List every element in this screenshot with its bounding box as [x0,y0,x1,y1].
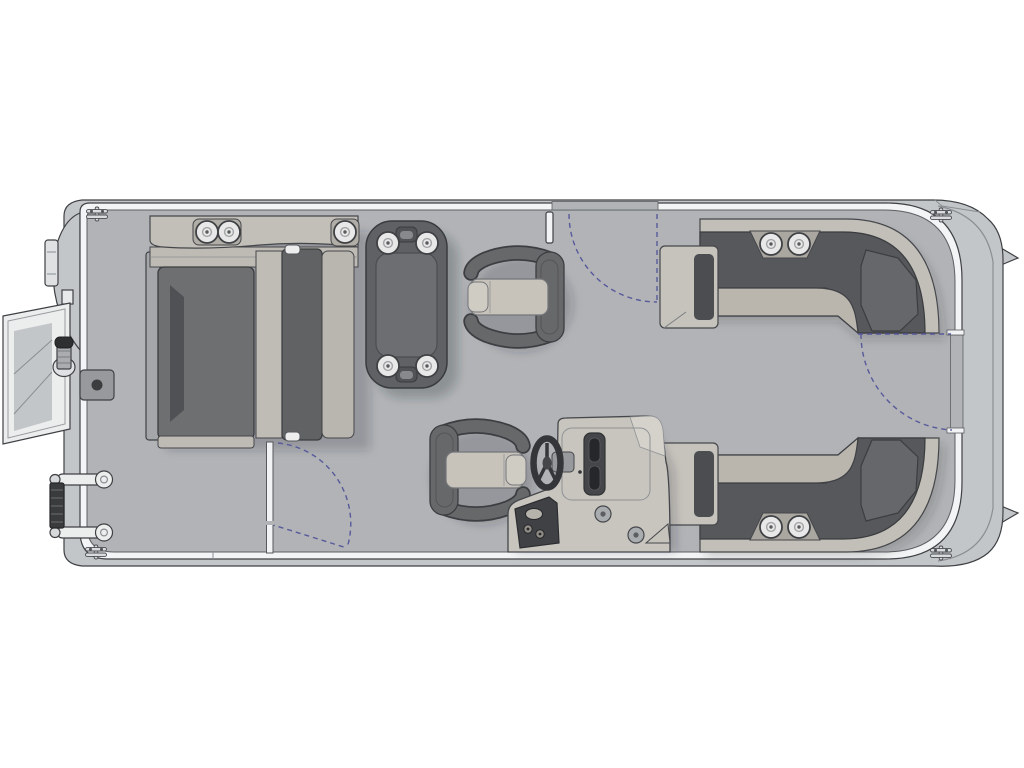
gate-latch-post [546,212,553,243]
armrest-inset [694,451,714,517]
bench-hinge-tab [285,245,300,254]
bench-backrest-strip [322,251,354,438]
gauge-icon [589,466,600,490]
bench-cushion-strip [282,249,322,440]
side-gate-hinge-break [266,521,275,525]
gate-latch-knob [55,337,73,348]
nav-light-icon [45,240,58,286]
armrest-inset [694,254,714,320]
gauge-icon [589,438,600,462]
floor-plan-canvas [0,0,1024,768]
pedestal-table [366,221,458,398]
bow-gate-hinge [62,290,73,304]
speaker-icon [526,509,543,520]
stern-lounge-starboard [660,438,945,558]
stern-gate-opening [951,335,964,429]
cushion-shadow [170,285,184,422]
bench-seat-strip [256,251,282,438]
table-inset [376,253,437,357]
stern-lounge-port [660,219,945,340]
hatch-latch [92,380,103,391]
lounge-backrest-top [150,216,358,248]
bench-hinge-tab [285,432,300,441]
side-gate-fence [267,442,274,553]
stern-gate-stop-bottom [947,428,964,433]
bow-gate-ladder-icon [3,303,75,444]
lounge-front-edge [158,436,254,448]
bow-gate-opening [552,202,658,211]
bow-lounge [146,216,370,450]
pontoon-floor-plan [0,0,1024,768]
